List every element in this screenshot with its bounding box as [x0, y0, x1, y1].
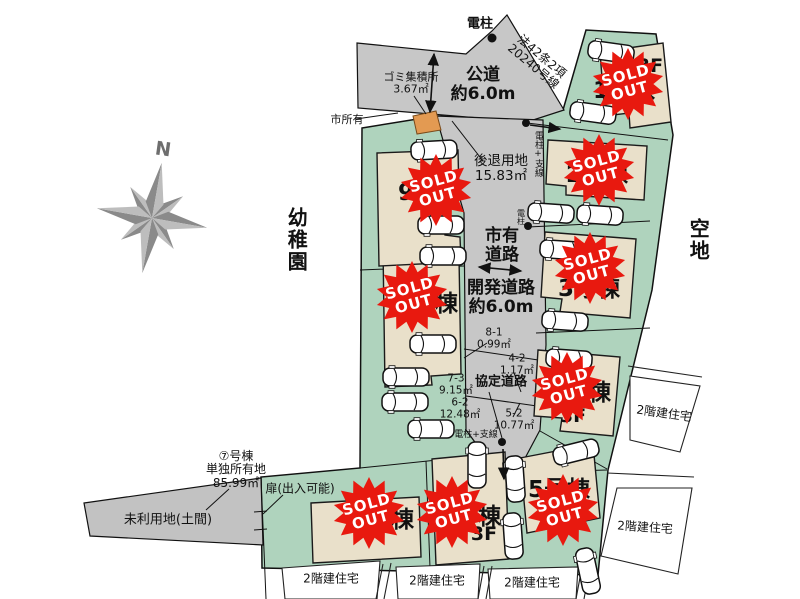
door-note-label: 扉(出入可能) [265, 482, 334, 495]
kindergarten-label: 幼稚園 [285, 207, 307, 273]
sub-parcel-8-1: 8-10.99㎡ [477, 327, 511, 351]
compass-rose [87, 153, 217, 283]
sold-out-badge-lot9: SOLDOUT [399, 153, 473, 227]
sold-out-badge-lot5: SOLDOUT [526, 473, 600, 547]
sold-out-badge-lot8: SOLDOUT [375, 260, 449, 334]
sub-parcel-5-2: 5-210.77㎡ [494, 408, 535, 432]
city-road-label: 市有道路 [485, 227, 519, 265]
utility-pole-dot [522, 119, 530, 127]
car-icon [410, 333, 456, 356]
utility-pole-wire-bottom-label: 電柱+支線 [454, 430, 498, 440]
vacant-land-label: 空地 [687, 218, 709, 262]
utility-pole-top-label: 電柱 [467, 18, 493, 33]
site-plan: 1号棟 3F 2号棟 3号棟 4号棟 3F 5号棟 6号棟 3F 7号棟 8号棟… [0, 0, 800, 599]
public-road-label: 公道約6.0m [451, 66, 516, 104]
utility-pole-dot [488, 34, 497, 43]
agreement-road-label: 協定道路 [475, 376, 527, 391]
garbage-station-area [413, 111, 441, 134]
sold-out-badge-lot3: SOLDOUT [553, 231, 627, 305]
sold-out-badge-lot1: SOLDOUT [591, 47, 665, 121]
sold-out-badge-lot2: SOLDOUT [562, 133, 636, 207]
garbage-station-label: ゴミ集積所3.67㎡ [384, 72, 439, 97]
sold-out-badge-lot7: SOLDOUT [332, 476, 406, 550]
sub-parcel-4-2: 4-21.17㎡ [500, 353, 534, 377]
sub-parcel-6-2: 6-212.48㎡ [440, 397, 481, 421]
neighbor-house-label: 2階建住宅 [504, 576, 560, 589]
utility-pole-mid-label: 電柱 [516, 209, 525, 225]
setback-label: 後退用地15.83㎡ [474, 154, 528, 184]
neighbor-house-label: 2階建住宅 [409, 574, 465, 587]
sold-out-badge-lot4: SOLDOUT [530, 351, 604, 425]
direction-arrow [503, 449, 504, 479]
compass-north-label: N [154, 138, 173, 161]
lot7-ownership-note: ⑦号棟単独所有地85.99㎡ [206, 450, 266, 490]
utility-pole-wire-top-label: 電柱+支線 [533, 131, 543, 177]
sub-parcel-7-3: 7-39.15㎡ [439, 373, 473, 397]
car-icon [383, 366, 429, 389]
sold-out-badge-lot6: SOLDOUT [415, 475, 489, 549]
city-owned-label: 市所有 [331, 114, 364, 126]
unused-land-label: 未利用地(土間) [124, 514, 212, 529]
car-icon [382, 391, 428, 414]
utility-pole-dot [498, 438, 506, 446]
dev-road-label: 開発道路約6.0m [467, 279, 535, 317]
neighbor-house-label: 2階建住宅 [303, 572, 359, 585]
car-icon [408, 418, 454, 441]
